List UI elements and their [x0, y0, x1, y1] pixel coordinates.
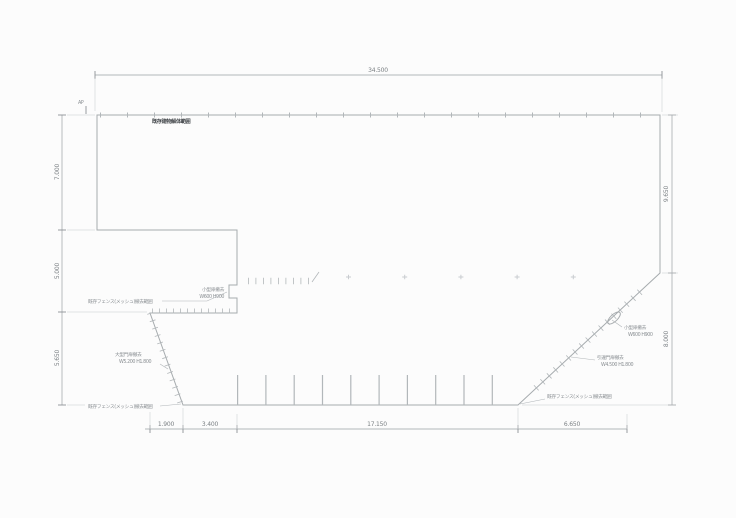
left-fence-lower-label: 既存フェンス(メッシュ)撤去範囲 [88, 403, 153, 410]
benchmark-mark: AP [78, 100, 86, 114]
left-dim-label-2: 5.000 [54, 263, 61, 280]
right-gate-small-label-2: W600 H900 [628, 332, 653, 338]
site-title-label: 既存建物解体範囲 [152, 117, 191, 125]
dimension-top: 34.500 [95, 67, 662, 112]
left-fence-upper-label: 既存フェンス(メッシュ)撤去範囲 [88, 298, 153, 305]
boundary-tick-patterns [100, 115, 658, 405]
right-fence-label: 既存フェンス(メッシュ)撤去範囲 [547, 393, 612, 400]
left-gate-label-2: W5.200 H1.800 [119, 359, 151, 365]
right-gate-small-label-1: 小型扉撤去 [624, 324, 647, 331]
site-plan-drawing: 34.500 7.000 5.000 5.650 9.650 [0, 0, 736, 518]
building-boundary [97, 115, 660, 405]
bottom-dim-label-1: 1.900 [158, 421, 175, 428]
right-gate-sliding-label-1: 引違門扉撤去 [597, 354, 624, 361]
bottom-dim-label-4: 6.650 [564, 421, 581, 428]
floor-plan-svg: 34.500 7.000 5.000 5.650 9.650 [0, 0, 736, 518]
left-gate-label-1: 大型門扉撤去 [115, 351, 142, 358]
right-dim-label-2: 8.000 [663, 331, 670, 348]
notch-gate-label-1: 小型扉撤去 [202, 286, 225, 293]
right-gate-sliding-label-2: W4.500 H1.800 [601, 362, 633, 368]
right-gate-small-leader [612, 320, 622, 327]
dimension-bottom: 1.900 3.400 17.150 6.650 [145, 408, 627, 433]
top-dim-label: 34.500 [368, 67, 388, 74]
dimension-right: 9.650 8.000 [522, 115, 678, 405]
left-gate-leader [160, 364, 168, 369]
benchmark-label: AP [78, 100, 84, 106]
plan-outline [97, 115, 660, 405]
right-gate-sliding-leader [571, 357, 595, 360]
left-fence-lower-leader [160, 404, 181, 406]
bottom-dim-label-3: 17.150 [367, 421, 387, 428]
left-dim-label-3: 5.650 [54, 350, 61, 367]
right-dim-label-1: 9.650 [663, 186, 670, 203]
left-dim-label-1: 7.000 [54, 164, 61, 181]
notch-tick-flick [312, 272, 319, 282]
bottom-dim-label-2: 3.400 [202, 421, 219, 428]
annotation-labels: 小型扉撤去 W600 H900 既存フェンス(メッシュ)撤去範囲 大型門扉撤去 … [88, 286, 653, 410]
gate-symbol-ellipse [606, 310, 622, 326]
